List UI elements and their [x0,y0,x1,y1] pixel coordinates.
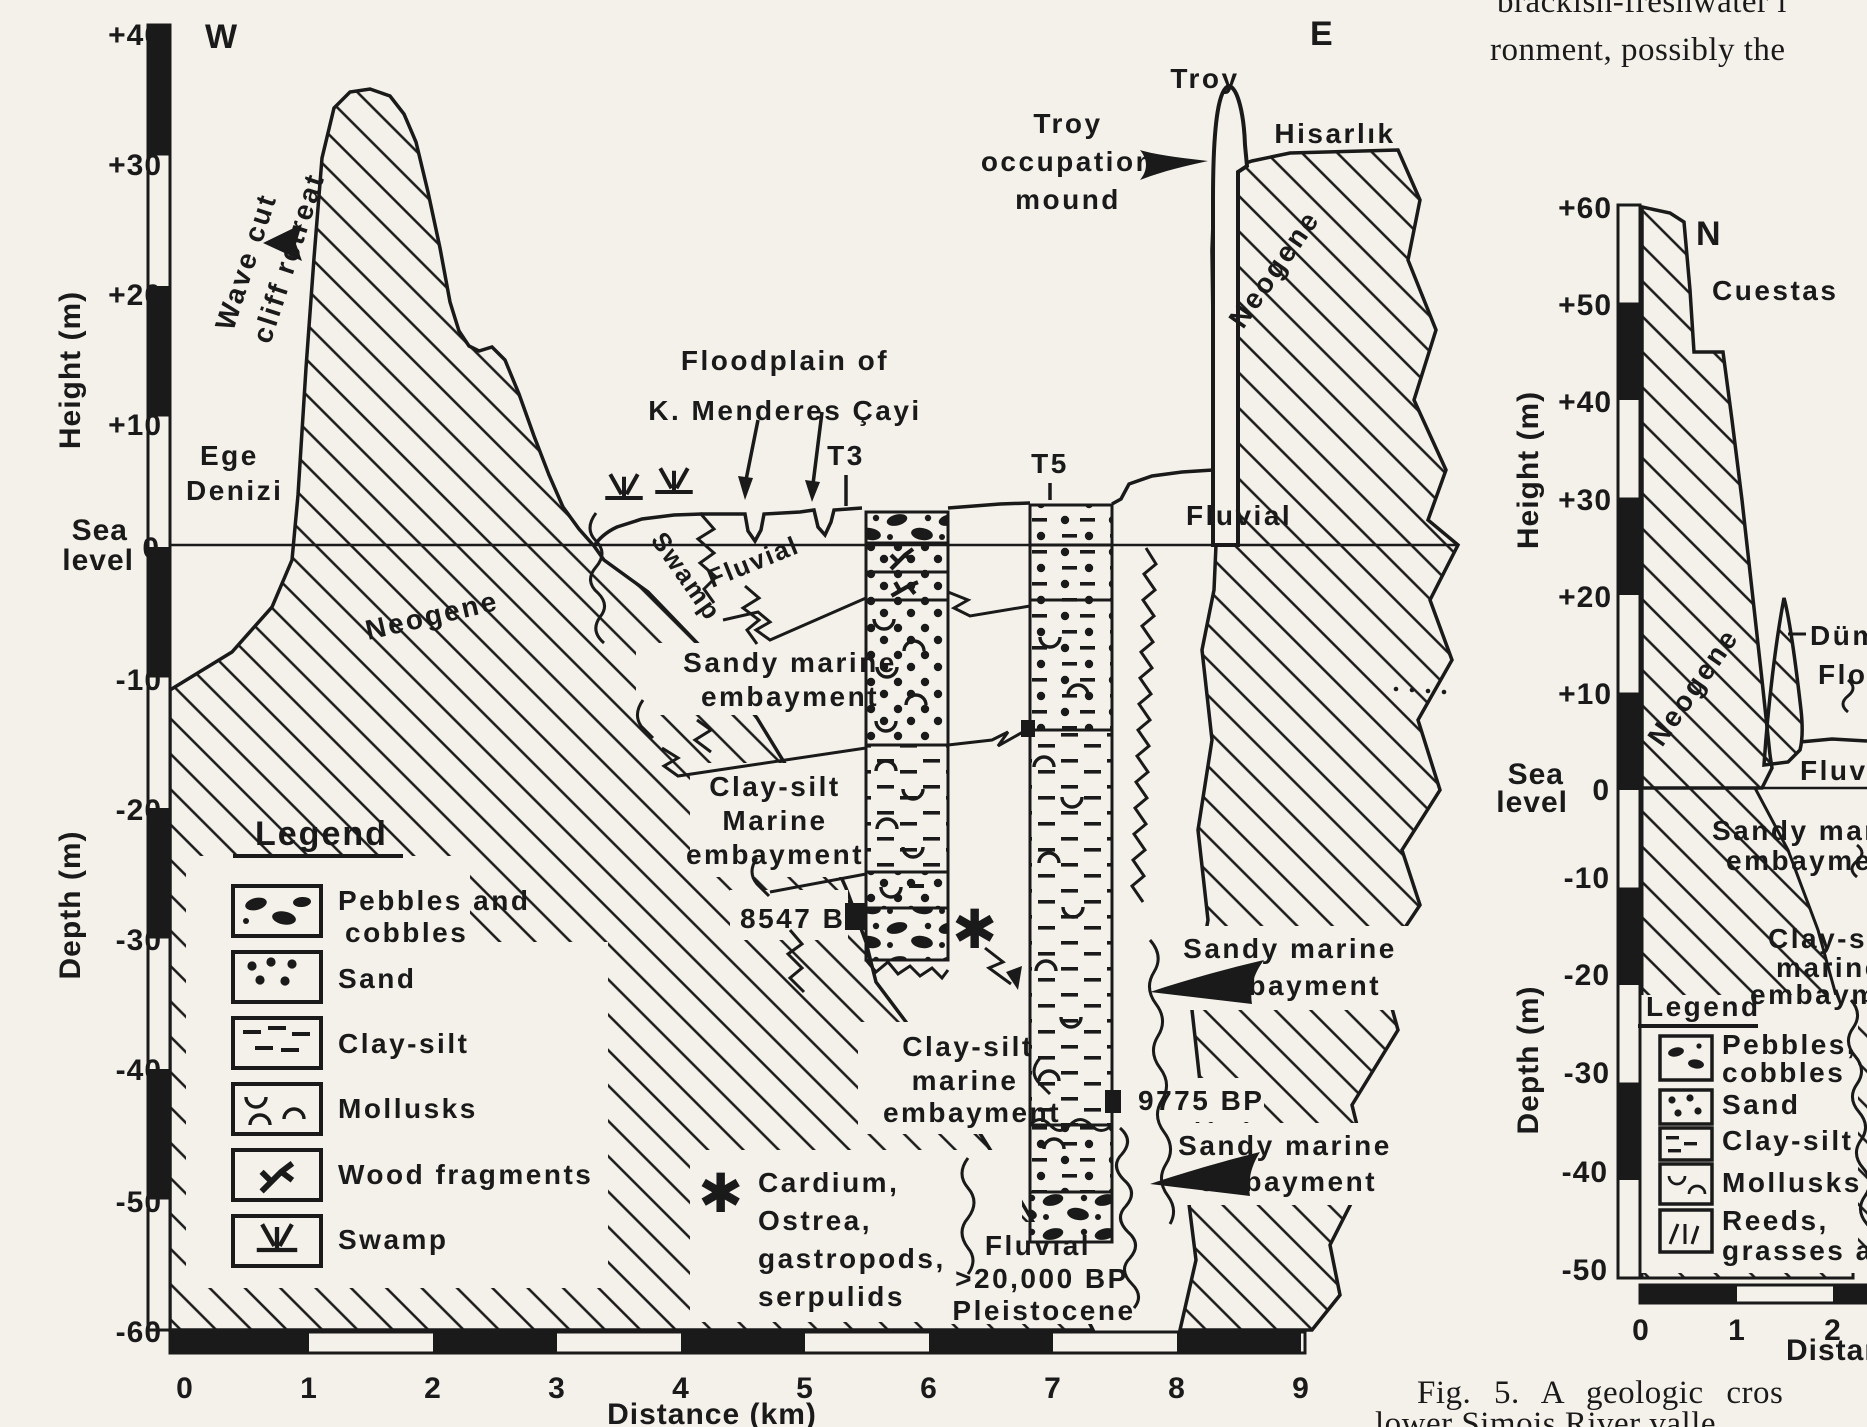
zero-label: 0 [142,532,160,565]
fig5-x-tick: 1 [1728,1314,1746,1347]
fig5-fluvial-label: Fluvia [1800,755,1867,786]
fig5-clay-silt-label: Clay-silt [1768,923,1867,954]
troy-occupation-mound-label: Troy [1033,108,1102,139]
fig5-legend-item-label: grasses an [1722,1235,1867,1266]
fig5-clay-silt-label: embayme [1750,979,1867,1010]
boundary-marker [1021,720,1035,737]
legend-item-label: Clay-silt [338,1028,469,1059]
sandy-marine-east-label: Sandy marine [1183,933,1397,964]
east-label: E [1310,15,1335,53]
fig5-legend-item-label: Clay-silt [1722,1125,1853,1156]
core-t3 [866,512,948,978]
clay-silt-marine-label: embayment [686,839,864,870]
fig5-legend-item-label: Reeds, [1722,1205,1829,1236]
core-label-t5: T5 [1031,448,1069,479]
x-tick: 7 [1044,1372,1062,1405]
fig5-north-label: N [1696,215,1723,253]
fig5-legend-item-label: Sand [1722,1089,1800,1120]
core-label-t3: T3 [827,440,865,471]
sandy-marine-label: embayment [701,681,879,712]
troy-occupation-mound-label: occupation [981,146,1155,177]
troy-label: Troy [1170,63,1239,94]
sandy-marine-east-label: Sandy marine [1178,1130,1392,1161]
x-axis-bar [170,1332,1305,1353]
legend-item-label: Pebbles and [338,885,530,916]
pleistocene-label: Pleistocene [952,1295,1135,1326]
fig5-hatch-sliver [1858,1000,1867,1270]
fig5-height-axis-label: Height (m) [1512,391,1545,549]
legend-item-label: Wood fragments [338,1159,593,1190]
x-tick: 0 [176,1372,194,1405]
fig5-y-tick: +60 [1558,192,1612,225]
fig5-sandy-marine-label: Sandy marin [1712,815,1867,846]
clay-silt-lower-label: embayment [883,1097,1061,1128]
sandy-marine-east-label: embayment [1203,970,1381,1001]
sea-label: Sea [72,514,128,547]
fig5-y-tick: +30 [1558,484,1612,517]
fig5-y-tick: -30 [1564,1057,1610,1090]
fossil-list: gastropods, [758,1243,946,1274]
column-text-fragment: ronment, possibly the [1490,32,1786,68]
fig5-y-axis-bar [1618,205,1640,1278]
date-20000-label: >20,000 BP [955,1263,1129,1294]
fig5-x-tick: 0 [1632,1314,1650,1347]
x-axis-label: Distance (km) [607,1398,817,1427]
date-9775-label: 9775 BP [1138,1085,1264,1116]
legend-title: Legend [255,815,388,853]
floodplain-label: K. Menderes Çayi [648,395,921,426]
fig5-y-tick: +20 [1558,581,1612,614]
legend-swatch-clay-silt [233,1018,321,1068]
fig5-y-tick: -10 [1564,862,1610,895]
clay-silt-lower-label: marine [912,1065,1019,1096]
y-tick: -10 [116,664,162,697]
sandy-marine-label: Sandy marine [683,647,897,678]
sandy-marine-east-label: embayment [1199,1166,1377,1197]
y-tick: +30 [108,149,162,182]
height-axis-label: Height (m) [54,291,87,449]
date-marker-9775 [1105,1090,1121,1113]
fig5-y-tick: +10 [1558,678,1612,711]
y-tick: -30 [116,924,162,957]
figure-caption: lower Simois River valle [1375,1406,1716,1427]
fig5-legend-item-label: Pebbles, [1722,1029,1857,1060]
y-tick: -60 [116,1316,162,1349]
fluvial-terrace-label: Fluvial [1186,500,1292,531]
fig5-swatch-pebbles [1660,1036,1712,1080]
ege-denizi-label: Ege [200,440,259,471]
fig5-zero-label: 0 [1592,774,1610,807]
fossil-list: Cardium, [758,1167,899,1198]
fig5-y-tick: -50 [1562,1254,1608,1287]
legend-swatch-mollusks [233,1084,321,1134]
fig5-y-tick: -40 [1562,1156,1608,1189]
date-8547-label: 8547 BP [740,903,866,934]
hisarlik-label: Hisarlık [1274,118,1395,149]
y-tick: +20 [108,279,162,312]
fig5-legend-title: Legend [1646,991,1761,1022]
legend-item-label: Mollusks [338,1093,478,1124]
x-tick: 9 [1292,1372,1310,1405]
asterisk-symbol: ✱ [952,898,997,961]
ege-denizi-label: Denizi [186,475,283,506]
west-label: W [205,18,239,56]
y-tick: +10 [108,409,162,442]
floodplain-label: Floodplain of [681,345,889,376]
legend-swatch-pebbles [233,886,321,936]
fossil-list: serpulids [758,1281,905,1312]
x-tick: 8 [1168,1372,1186,1405]
fig5-x-axis-bar [1640,1285,1867,1303]
column-text-fragment: brackish-freshwater i [1497,0,1787,20]
fig5-cuestas-label: Cuestas [1712,275,1838,306]
legend-swatch-sand [233,952,321,1002]
y-tick: -40 [116,1054,162,1087]
fig5-dumrek-label: Dümr [1810,620,1867,651]
fig5-swatch-mollusks [1660,1164,1712,1204]
asterisk-symbol: ✱ [698,1162,743,1225]
legend-item-label: Swamp [338,1224,449,1255]
fig5-legend-item-label: Mollusks [1722,1167,1862,1198]
fig5-legend-item-label: cobbles [1722,1057,1845,1088]
fig5-floodplain-label: Floo [1818,659,1867,690]
fossil-list: Ostrea, [758,1205,872,1236]
y-tick: +40 [108,19,162,52]
scanned-figure-page: Legend [0,0,1867,1427]
clay-silt-marine-label: Clay-silt [709,771,840,802]
y-tick: -50 [116,1186,162,1219]
fig5-y-tick: +40 [1558,386,1612,419]
fig5-y-tick: -20 [1564,959,1610,992]
x-tick: 2 [424,1372,442,1405]
depth-axis-label: Depth (m) [54,831,87,980]
troy-occupation-mound-label: mound [1015,184,1121,215]
y-tick: -20 [116,794,162,827]
fig5-x-axis-label: Distan [1786,1334,1867,1367]
geologic-cross-section-figure: Legend [0,0,1867,1427]
fig5-swatch-sand [1660,1090,1712,1124]
clay-silt-marine-label: Marine [722,805,827,836]
fig5-sandy-marine-label: embayment [1726,845,1867,876]
legend-item-label: Sand [338,963,416,994]
fig5-level-label: level [1496,786,1568,819]
x-tick: 6 [920,1372,938,1405]
fig5-y-tick: +50 [1558,289,1612,322]
core-t5 [1030,505,1112,1242]
fig5-depth-axis-label: Depth (m) [1512,986,1545,1135]
clay-silt-lower-label: Clay-silt [902,1031,1033,1062]
legend-item-label: cobbles [345,917,468,948]
x-tick: 3 [548,1372,566,1405]
level-label: level [62,544,134,577]
fluvial-deep-label: Fluvial [985,1230,1091,1261]
x-tick: 1 [300,1372,318,1405]
